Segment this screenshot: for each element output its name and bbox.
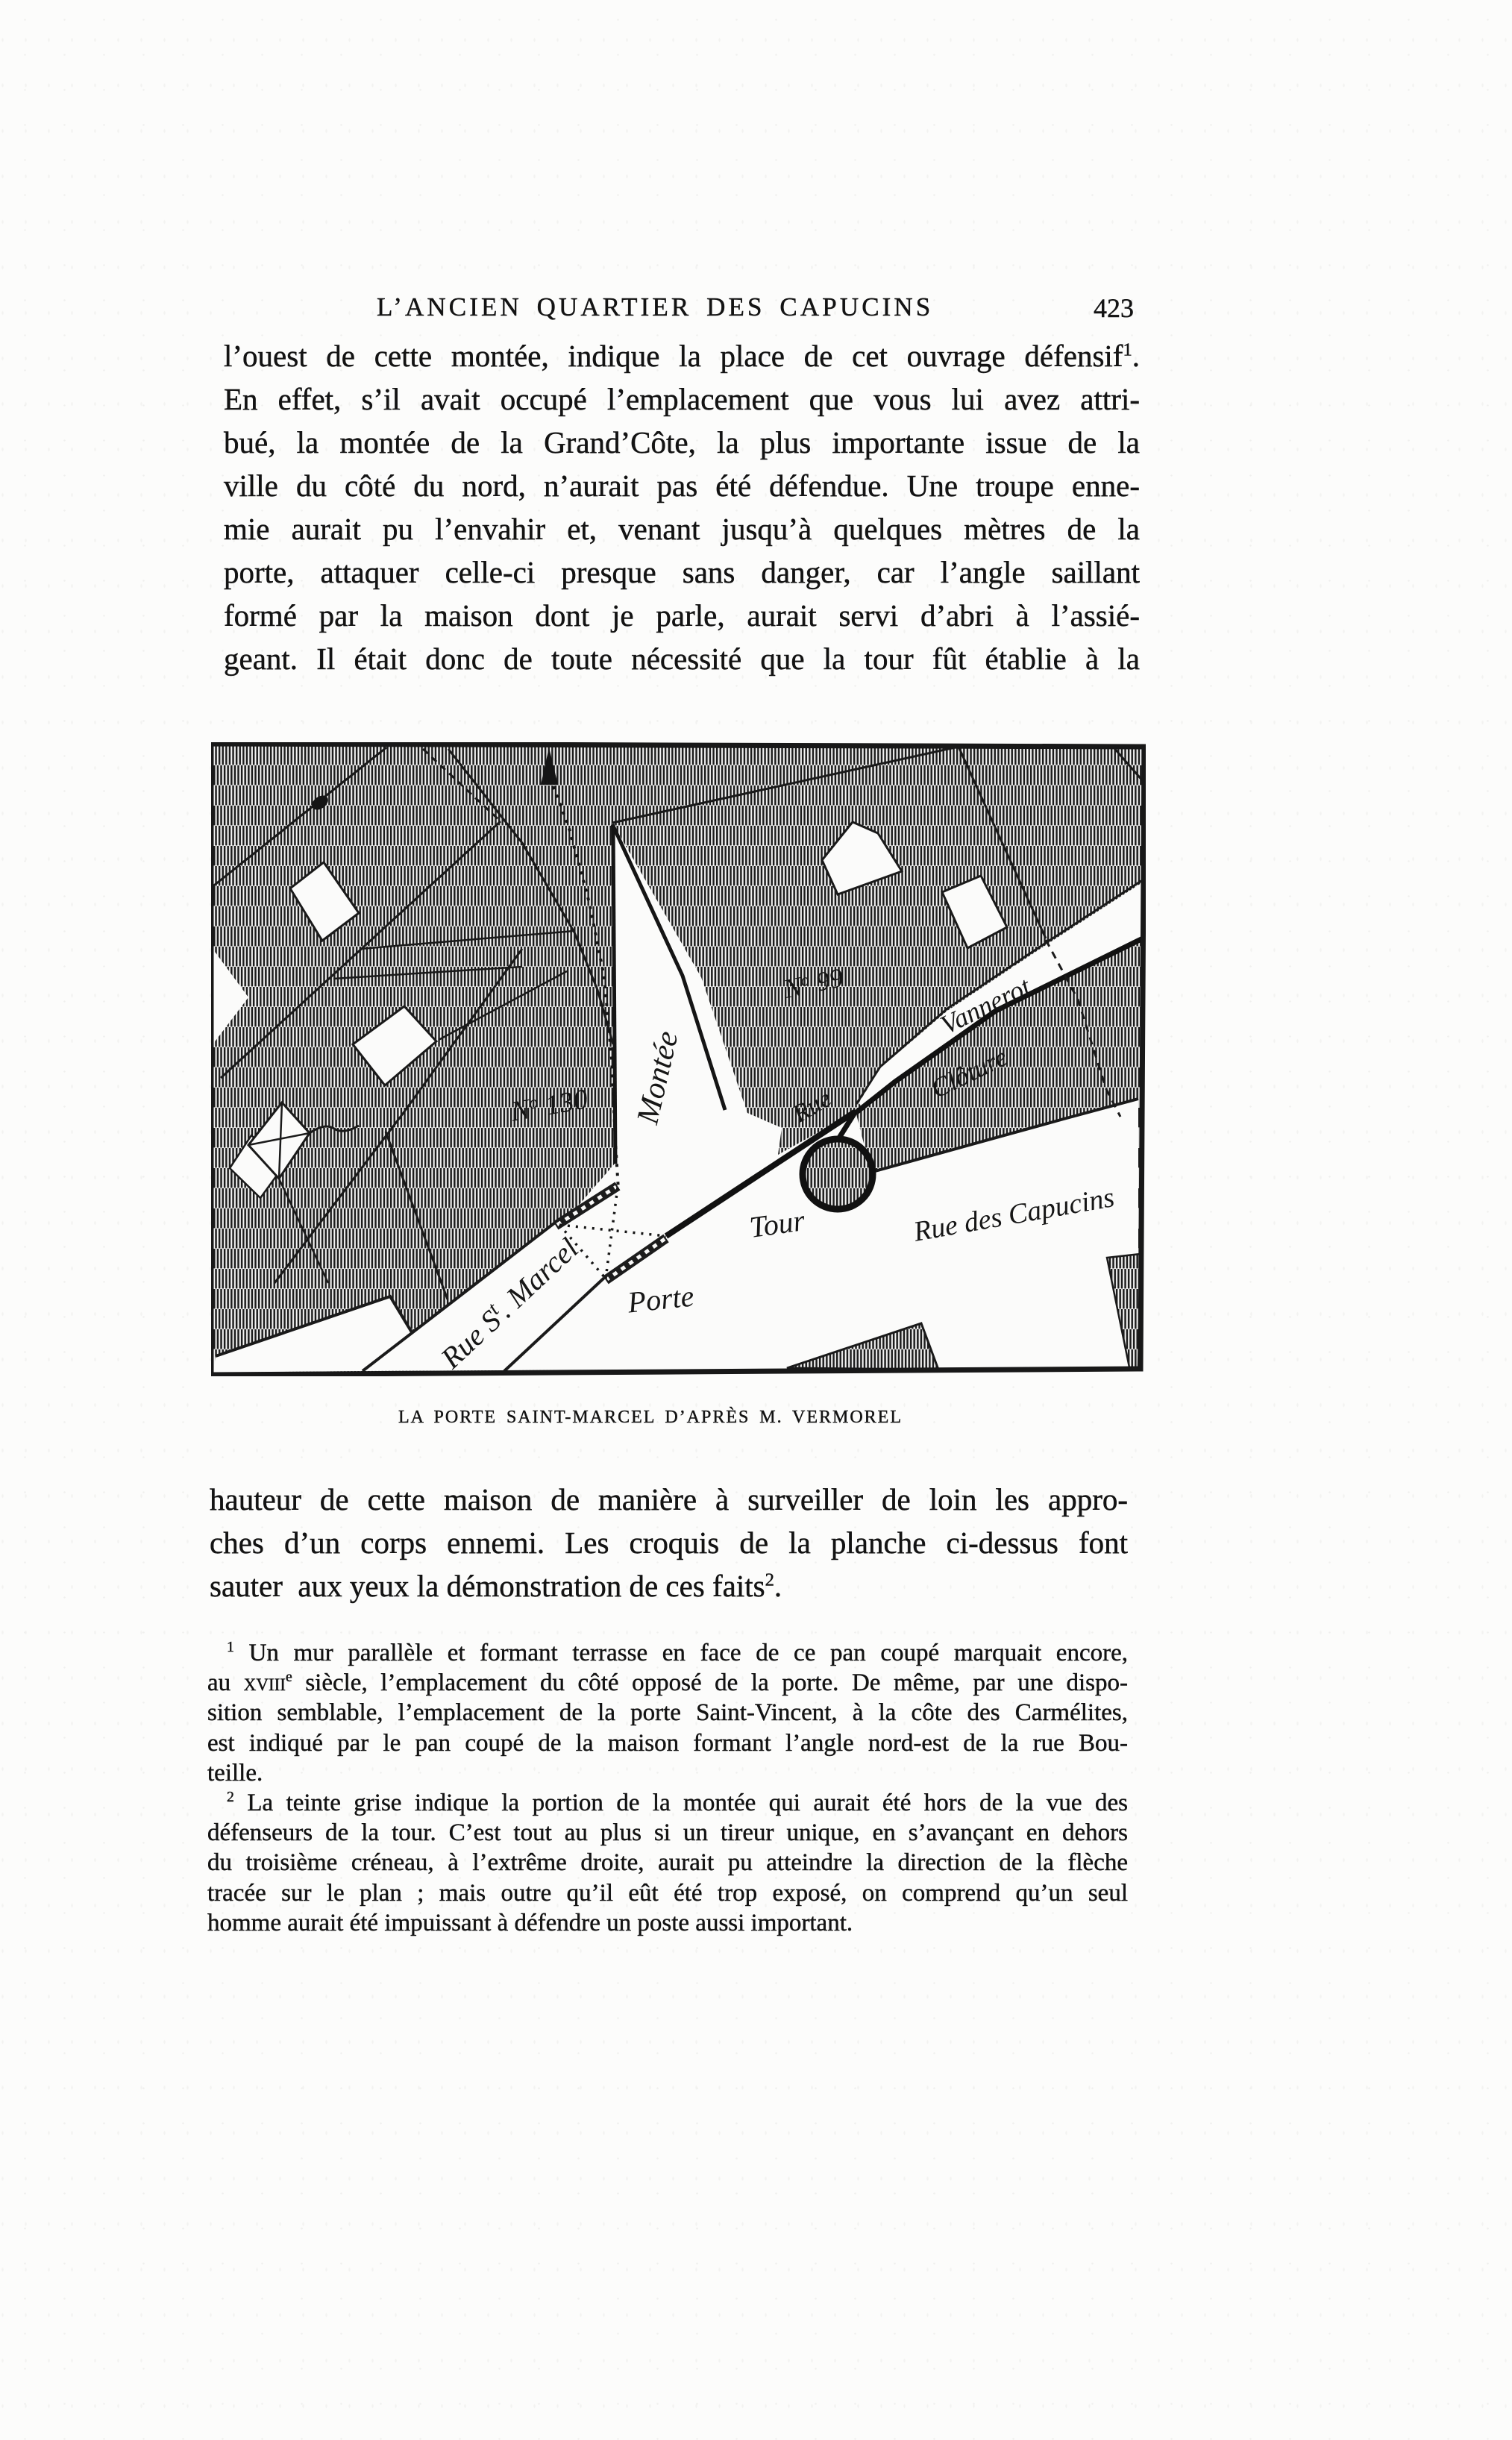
svg-text:Porte: Porte — [625, 1279, 695, 1319]
